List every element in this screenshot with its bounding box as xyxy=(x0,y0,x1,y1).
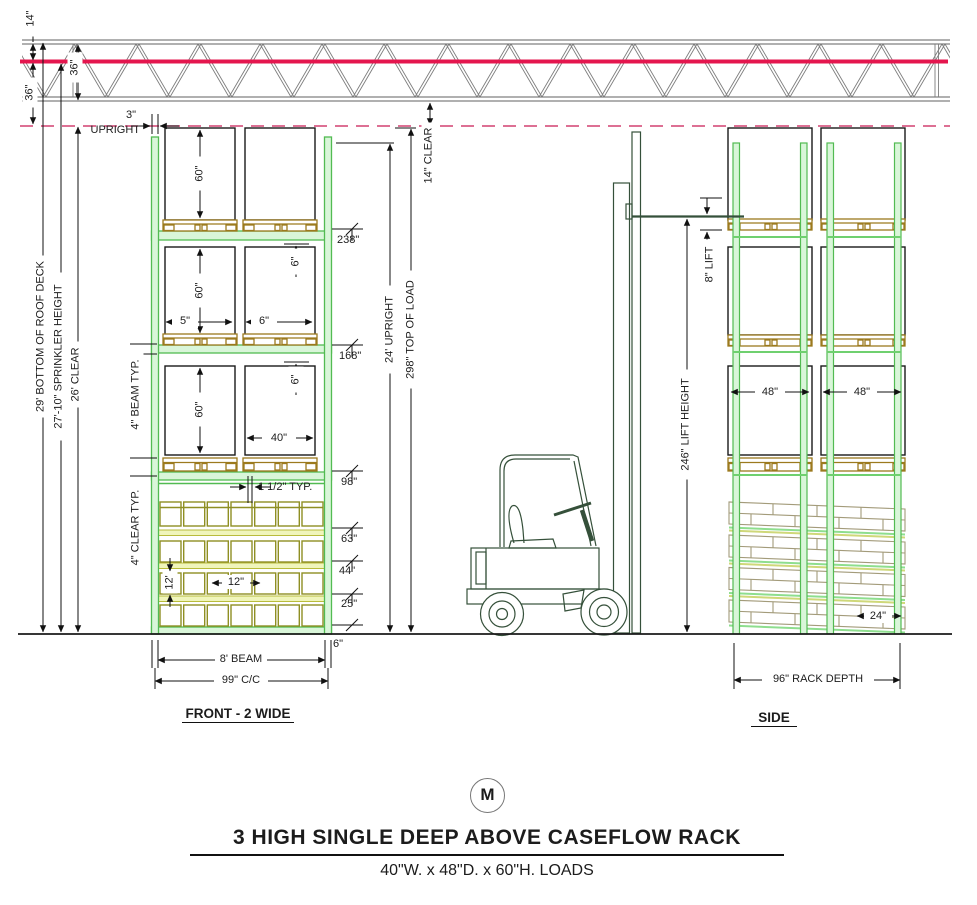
dim-14in: 14" xyxy=(24,1,39,37)
label-8in-lift: 8" LIFT xyxy=(703,240,718,290)
label-4in-beam-typ: 4" BEAM TYP. xyxy=(129,353,144,437)
roof-truss xyxy=(12,40,976,101)
dim-6in-beam-clear-2: 6" xyxy=(289,249,304,275)
dim-12in-case-width: 12" xyxy=(222,575,250,589)
dim-8ft-beam: 8' BEAM xyxy=(215,652,267,666)
dim-6in-beam-clear-3: 6" xyxy=(289,367,304,393)
forklift xyxy=(467,132,744,636)
drawing-subtitle: 40"W. x 48"D. x 60"H. LOADS xyxy=(290,862,684,880)
label-sprinkler-height: 27'-10" SPRINKLER HEIGHT xyxy=(52,273,67,441)
label-4in-clear-typ: 4" CLEAR TYP. xyxy=(129,484,144,572)
dim-60in-level3: 60" xyxy=(193,393,208,427)
dim-3in-upright-word: UPRIGHT xyxy=(84,123,140,137)
dim-48in-bay1: 48" xyxy=(755,385,785,399)
dim-12-case-height: 12' xyxy=(163,572,178,594)
dim-level-238: 238" xyxy=(337,233,371,247)
dim-level-63: 63" xyxy=(341,532,369,546)
side-rack xyxy=(728,128,905,634)
label-14in-clear: 14" CLEAR xyxy=(422,123,437,189)
dim-level-98: 98" xyxy=(341,475,369,489)
dim-lane-gap: 1 1/2" TYP. xyxy=(258,480,338,494)
drawing-canvas xyxy=(0,0,977,905)
dim-99in-cc: 99" C/C xyxy=(214,673,268,687)
dim-40in-load-width: 40" xyxy=(262,431,296,445)
drawing-title: 3 HIGH SINGLE DEEP ABOVE CASEFLOW RACK xyxy=(190,826,784,856)
dim-level-44: 44" xyxy=(339,564,367,578)
rack-elevation-drawing: 14" 36" 36" 29' BOTTOM OF ROOF DECK 27'-… xyxy=(0,0,977,905)
front-rack xyxy=(152,128,332,634)
side-view-caption: SIDE xyxy=(751,711,797,727)
dim-96in-rack-depth: 96" RACK DEPTH xyxy=(762,672,874,686)
dim-3in-upright-value: 3" xyxy=(96,108,136,122)
dim-60in-level1: 60" xyxy=(193,157,208,191)
dim-6in-gap: 6" xyxy=(251,314,277,328)
dim-level-6: 6" xyxy=(333,637,353,651)
label-298in-top-load: 298" TOP OF LOAD xyxy=(404,271,419,389)
dim-36in-sprinkler: 36" xyxy=(23,78,38,108)
label-246in-lift: 246" LIFT HEIGHT xyxy=(679,370,694,480)
dim-level-25: 25" xyxy=(341,597,369,611)
front-view-caption: FRONT - 2 WIDE xyxy=(182,707,294,723)
label-roof-deck: 29' BOTTOM OF ROOF DECK xyxy=(34,256,49,418)
dim-48in-bay2: 48" xyxy=(847,385,877,399)
company-logo: M xyxy=(470,778,505,813)
dim-24in-case-depth: 24" xyxy=(864,609,892,623)
dim-level-168: 168" xyxy=(339,349,373,363)
dim-5in-clearance: 5" xyxy=(172,314,198,328)
dim-60in-level2: 60" xyxy=(193,274,208,308)
dim-36in-joist: 36" xyxy=(68,53,83,83)
label-24ft-upright: 24' UPRIGHT xyxy=(383,286,398,374)
label-26-clear: 26' CLEAR xyxy=(69,342,84,408)
